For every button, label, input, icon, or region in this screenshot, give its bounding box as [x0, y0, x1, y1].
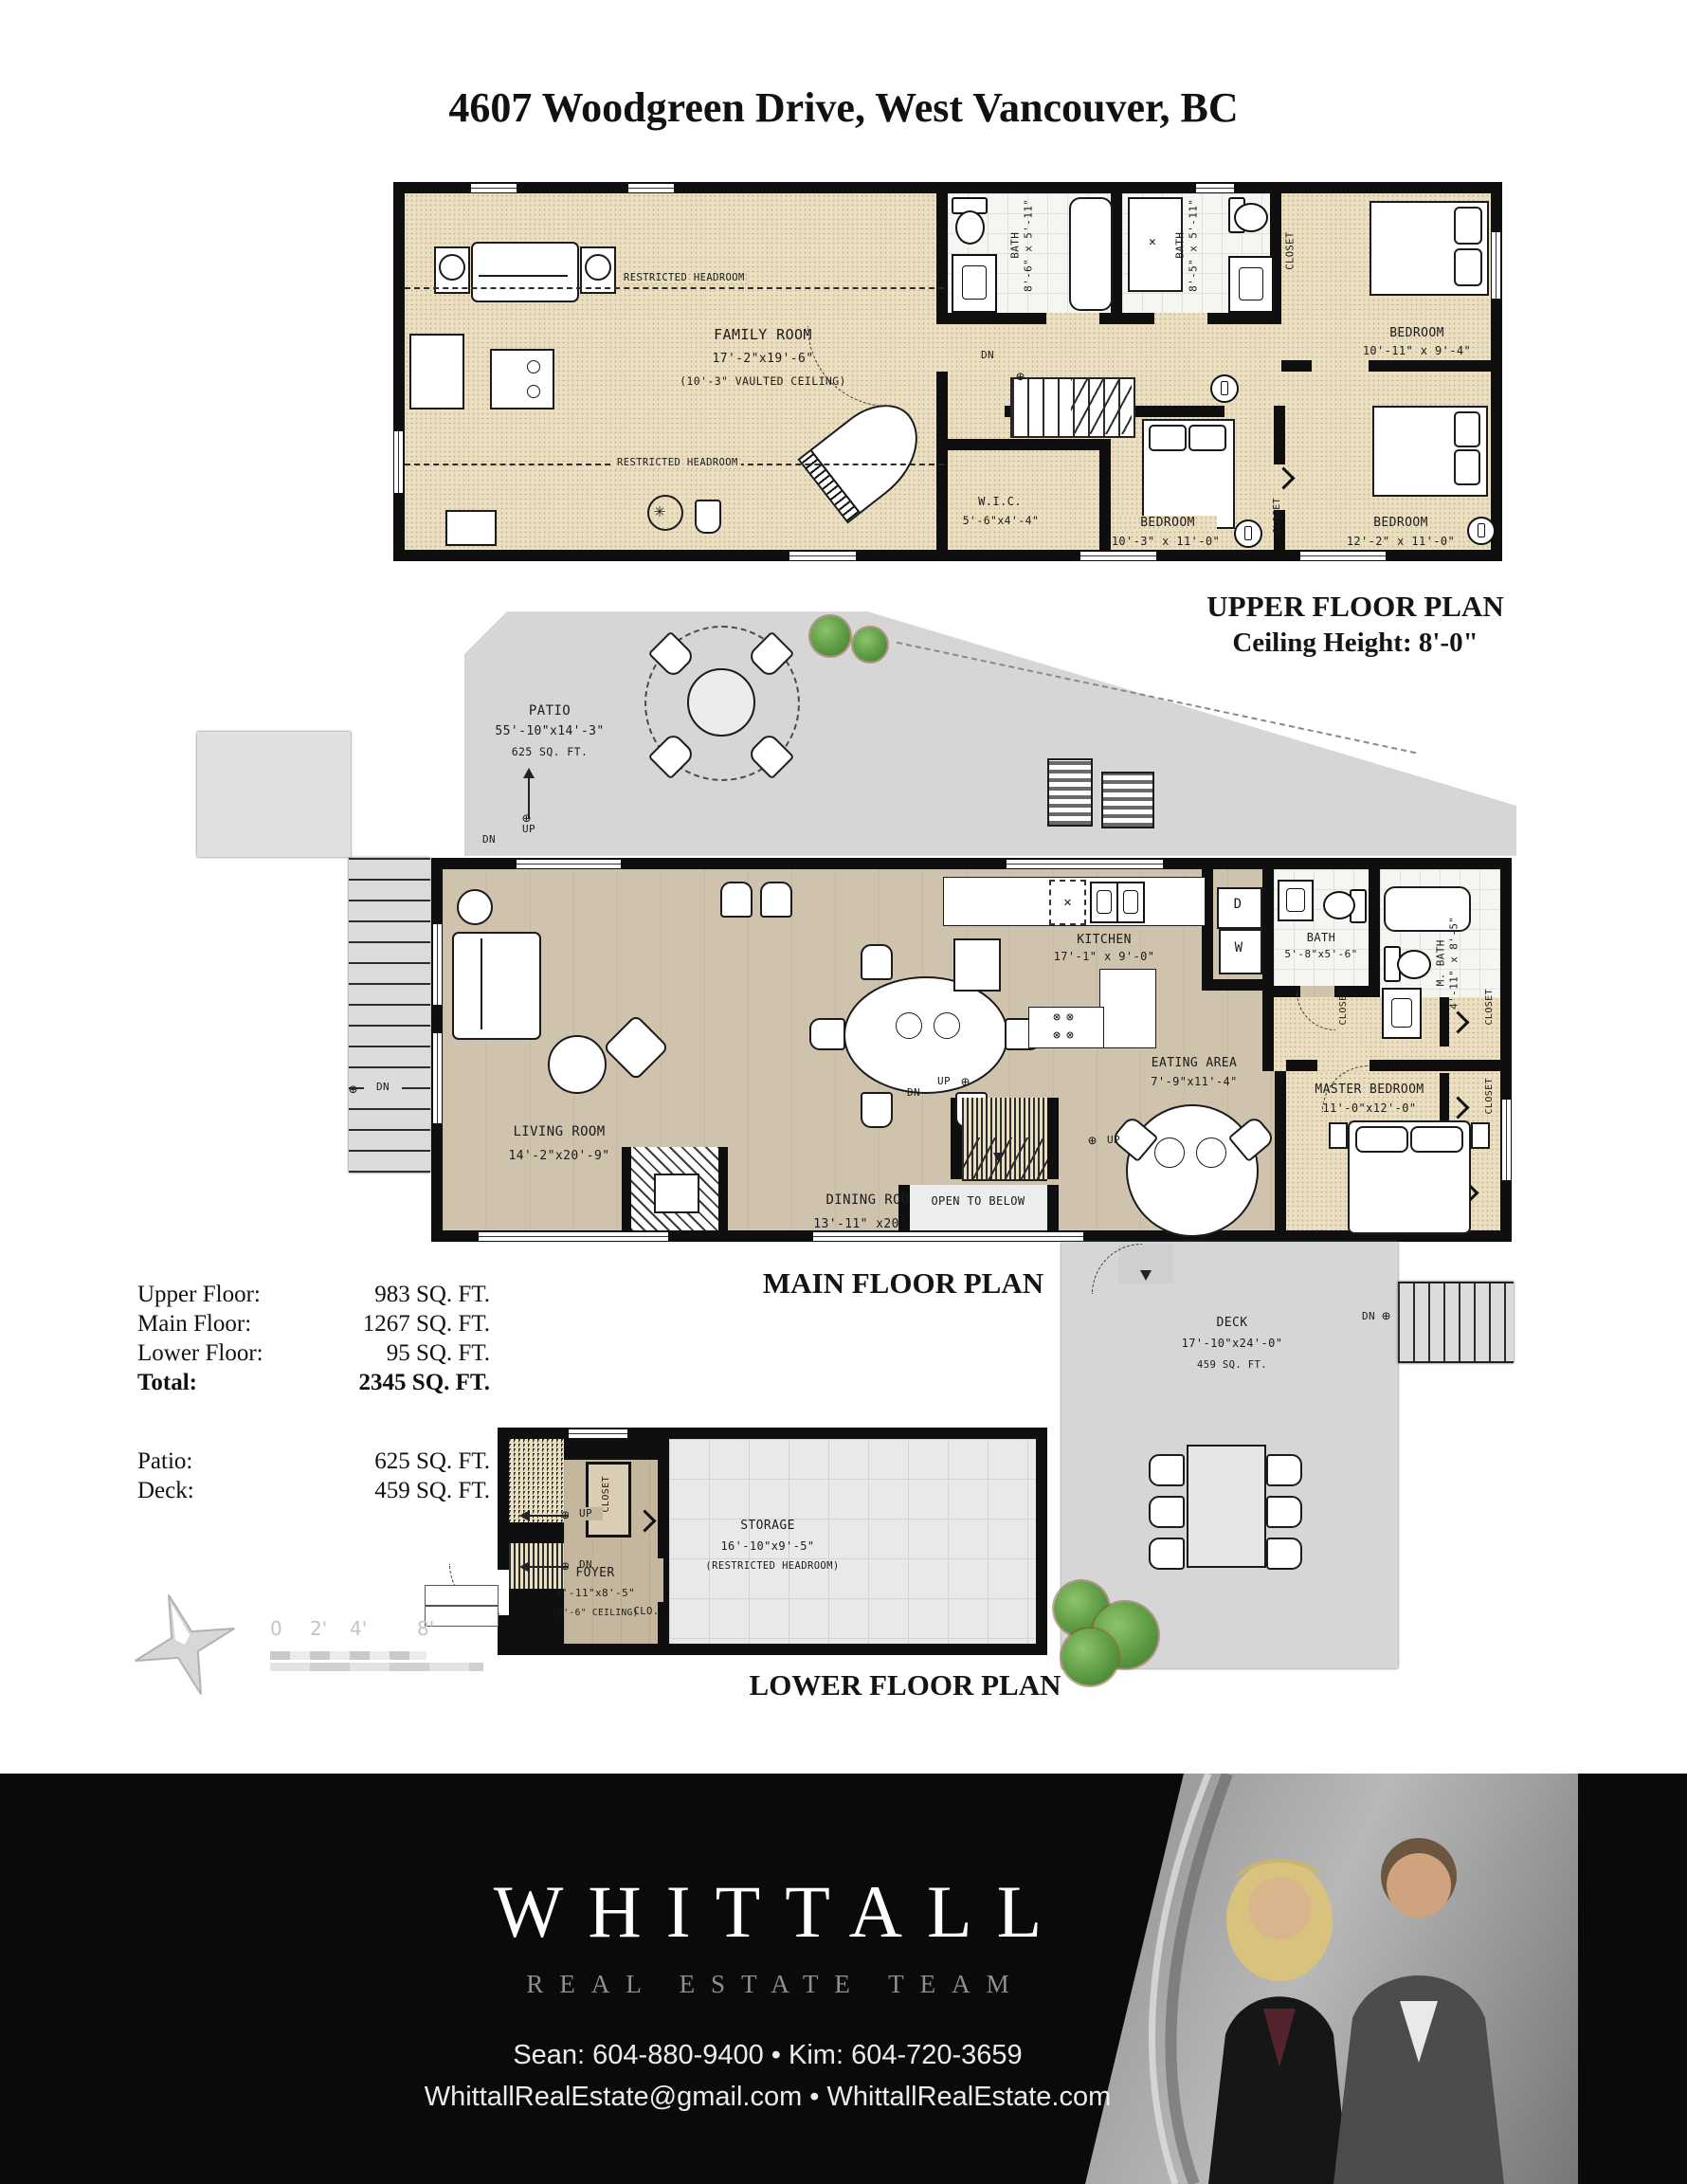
- chair-icon: [695, 500, 721, 534]
- scale-4: 4': [350, 1617, 367, 1640]
- armchair-icon: [720, 882, 753, 918]
- area-label: Main Floor:: [137, 1311, 251, 1337]
- chair-icon: [1149, 1538, 1185, 1570]
- living-label: LIVING ROOM: [464, 1124, 654, 1141]
- pillow-icon: [1454, 449, 1480, 485]
- tv-console-icon: [490, 349, 554, 409]
- upper-plan-caption: UPPER FLOOR PLAN: [1118, 590, 1592, 624]
- bedroom1-dims: 10'-11" x 9'-4": [1336, 344, 1497, 358]
- wall: [1202, 979, 1274, 991]
- window: [1502, 1100, 1511, 1180]
- master-label: MASTER BEDROOM: [1270, 1083, 1469, 1098]
- window: [1300, 552, 1386, 560]
- bath1-name: BATH: [1008, 232, 1021, 259]
- scale-segments: [270, 1651, 426, 1660]
- restricted-headroom-label: RESTRICTED HEADROOM: [621, 272, 748, 284]
- master-dims: 11'-0"x12'-0": [1270, 1101, 1469, 1116]
- chair-icon: [1266, 1496, 1302, 1528]
- speaker-icon: [527, 360, 540, 373]
- north-arrow-icon: [133, 1592, 237, 1697]
- bench-icon: [445, 510, 497, 546]
- closet-label: CLOSET: [1338, 976, 1351, 1037]
- exterior-stairs: [349, 858, 430, 1173]
- chair-icon: [1149, 1496, 1185, 1528]
- stair-node-icon: [1382, 1309, 1396, 1323]
- bath-dims: 5'-8"x5'-6": [1270, 948, 1372, 961]
- toilet-icon: [1234, 203, 1268, 232]
- window: [628, 184, 674, 192]
- stairs-winder: [962, 1137, 1047, 1179]
- lamp-icon: [439, 254, 465, 281]
- speaker-icon: [527, 385, 540, 398]
- area-row: Upper Floor:983 SQ. FT.: [137, 1282, 490, 1308]
- deck-sqft: 459 SQ. FT.: [1156, 1359, 1308, 1372]
- cabinet-icon: [409, 334, 464, 409]
- window: [433, 1033, 442, 1123]
- footer-web: WhittallRealEstate@gmail.com • WhittallR…: [227, 2082, 1308, 2113]
- area-value: 2345 SQ. FT.: [359, 1370, 490, 1396]
- wall: [622, 1147, 631, 1230]
- fireplace-box: [654, 1174, 699, 1213]
- washer-icon: W: [1219, 929, 1262, 974]
- bath-label: BATH: [1274, 931, 1369, 945]
- entry-step: [425, 1585, 499, 1606]
- footer-phones: Sean: 604-880-9400 • Kim: 604-720-3659: [227, 2040, 1308, 2071]
- scale-8: 8': [417, 1617, 434, 1640]
- toilet-icon: [1397, 950, 1431, 979]
- dryer-label: D: [1219, 897, 1257, 914]
- kitchen-island: [1099, 969, 1156, 1048]
- plate-icon: [1196, 1137, 1226, 1168]
- restricted-headroom-label: RESTRICTED HEADROOM: [614, 457, 741, 469]
- pillow-icon: [1355, 1126, 1408, 1153]
- pillow-icon: [1410, 1126, 1463, 1153]
- lamp-icon: [585, 254, 611, 281]
- sofa-back-line: [479, 275, 568, 277]
- chair-icon: [861, 944, 893, 980]
- bedroom2-dims: 10'-3" x 11'-0": [1111, 535, 1221, 549]
- deck-dims: 17'-10"x24'-0": [1156, 1337, 1308, 1351]
- deck-stairs: [1398, 1282, 1514, 1363]
- area-value: 459 SQ. FT.: [374, 1478, 490, 1504]
- foyer-label: FOYER: [548, 1566, 643, 1581]
- clo-label: CLO.: [626, 1606, 667, 1618]
- toilet-icon: [1323, 891, 1355, 919]
- window: [813, 1232, 1083, 1241]
- window: [517, 860, 621, 868]
- lower-plan-caption: LOWER FLOOR PLAN: [716, 1668, 1095, 1702]
- dn-label: DN: [969, 349, 1007, 362]
- plant-icon: [853, 628, 887, 662]
- chair-icon: [1149, 1454, 1185, 1486]
- wall: [1286, 1060, 1317, 1071]
- deck-label: DECK: [1156, 1316, 1308, 1331]
- kitchen-dims: 17'-1" x 9'-0": [1024, 950, 1185, 964]
- washer-label: W: [1221, 940, 1257, 957]
- wall: [1369, 360, 1491, 372]
- area-value: 625 SQ. FT.: [374, 1448, 490, 1475]
- wall: [718, 1147, 728, 1230]
- stair-node-icon: [1016, 370, 1030, 384]
- up-label: UP: [510, 823, 548, 836]
- eating-label: EATING AREA: [1099, 1056, 1289, 1071]
- patio-sqft: 625 SQ. FT.: [474, 745, 626, 758]
- sink-icon: [1278, 880, 1314, 921]
- plant-icon: [810, 616, 850, 656]
- eating-dims: 7'-9"x11'-4": [1099, 1075, 1289, 1089]
- scale-2: 2': [310, 1617, 327, 1640]
- pillow-icon: [1149, 425, 1187, 451]
- chair-icon: [1266, 1454, 1302, 1486]
- cooktop-icon: ⊗⊗⊗⊗: [1033, 1009, 1099, 1045]
- plate-icon: [1154, 1137, 1185, 1168]
- bath1-dims: 8'-6" x 5'-11": [1022, 199, 1034, 292]
- window: [471, 184, 517, 192]
- bedroom3-label: BEDROOM: [1353, 516, 1448, 531]
- bedroom1-label: BEDROOM: [1336, 326, 1497, 341]
- sofa-icon: [471, 242, 579, 302]
- area-label: Lower Floor:: [137, 1340, 263, 1366]
- closet-label: CLOSET: [1484, 1065, 1497, 1126]
- main-plan-caption: MAIN FLOOR PLAN: [714, 1266, 1093, 1301]
- stove-icon: ✕: [1049, 880, 1086, 925]
- man-face: [1387, 1853, 1451, 1918]
- stair-node-icon: [961, 1075, 975, 1089]
- down-arrowhead-icon: [993, 1153, 1005, 1163]
- wic-dims: 5'-6"x4'-4": [944, 514, 1058, 527]
- chair-icon: [1266, 1538, 1302, 1570]
- eating-table-icon: [1126, 1104, 1259, 1237]
- sofa-cushion-line: [481, 938, 482, 1029]
- dn-label: DN: [895, 1086, 933, 1100]
- wall: [1047, 1098, 1059, 1179]
- nightstand-icon: [1471, 1122, 1490, 1149]
- storage-label: STORAGE: [673, 1519, 862, 1534]
- window: [1492, 232, 1500, 299]
- wall: [658, 1439, 669, 1558]
- area-value: 95 SQ. FT.: [387, 1340, 490, 1367]
- area-value: 983 SQ. FT.: [374, 1282, 490, 1308]
- table-icon: [647, 495, 683, 531]
- shower-x: ✕: [1149, 235, 1156, 249]
- window: [394, 431, 403, 493]
- sink-icon: [1382, 988, 1422, 1039]
- area-label: Total:: [137, 1370, 197, 1395]
- scale-0: 0: [270, 1617, 282, 1640]
- wall: [944, 439, 1111, 450]
- footer-brand: WHITTALL: [322, 1869, 1213, 1955]
- wall: [1281, 360, 1312, 372]
- area-value: 1267 SQ. FT.: [363, 1311, 490, 1338]
- wall: [1369, 869, 1380, 986]
- bath1-label: BATH 8'-6" x 5'-11": [1008, 189, 1035, 302]
- kitchen-sink-icon: [1090, 882, 1118, 923]
- window: [569, 1429, 627, 1438]
- bedroom2-label: BEDROOM: [1118, 516, 1217, 531]
- sectional-sofa-icon: [452, 932, 541, 1040]
- pillow-icon: [1188, 425, 1226, 451]
- mbath-name: M. BATH: [1434, 939, 1446, 986]
- area-label: Upper Floor:: [137, 1282, 261, 1307]
- footer-tagline: REAL ESTATE TEAM: [322, 1970, 1213, 1999]
- fridge-icon: [953, 938, 1001, 992]
- armchair-icon: [760, 882, 792, 918]
- area-label: Deck:: [137, 1478, 194, 1503]
- scale-bar: 0 2' 4' 8': [270, 1617, 498, 1674]
- floorplan-flyer: 4607 Woodgreen Drive, West Vancouver, BC…: [0, 0, 1687, 2184]
- wall: [1440, 1073, 1449, 1126]
- patio-dims: 55'-10"x14'-3": [474, 724, 626, 739]
- left-arrowhead-icon: [519, 1561, 530, 1573]
- foyer-dims: 4'-11"x8'-5": [548, 1587, 643, 1600]
- storage-dims: 16'-10"x9'-5": [673, 1539, 862, 1554]
- mbath-label: M. BATH 4'-11" x 8'-5": [1434, 901, 1460, 1025]
- area-row: Deck:459 SQ. FT.: [137, 1478, 490, 1504]
- [object: [133, 1592, 237, 1697]
- kitchen-label: KITCHEN: [1024, 933, 1185, 948]
- window: [789, 552, 856, 560]
- up-label: UP: [1097, 1134, 1130, 1147]
- wic-label: W.I.C.: [948, 495, 1052, 509]
- stair-node-icon: [349, 1083, 363, 1097]
- deck-table-icon: [1187, 1445, 1266, 1568]
- window: [1196, 184, 1234, 192]
- bathtub-icon: [1069, 197, 1113, 311]
- dn-label: DN: [470, 833, 508, 846]
- mbath-dims: 4'-11" x 8'-5": [1447, 917, 1460, 1010]
- plate-icon: [934, 1012, 960, 1039]
- nightstand-icon: [1329, 1122, 1348, 1149]
- toilet-icon: [955, 210, 985, 245]
- wall: [1099, 439, 1111, 550]
- pillow-icon: [1454, 411, 1480, 447]
- pillow-icon: [1454, 207, 1482, 245]
- wall: [1262, 869, 1274, 997]
- side-landing: [197, 732, 351, 857]
- bbq-icon: [1101, 772, 1154, 828]
- patio-label: PATIO: [474, 703, 626, 720]
- bedroom3-dims: 12'-2" x 11'-0": [1346, 535, 1456, 549]
- page-title: 4607 Woodgreen Drive, West Vancouver, BC: [275, 83, 1412, 132]
- coffee-table-icon: [548, 1035, 607, 1094]
- upper-plan-ceiling: Ceiling Height: 8'-0": [1118, 628, 1592, 659]
- closet-label: CLOSET: [1284, 221, 1297, 282]
- patio-table-icon: [687, 668, 755, 737]
- stairs-winder: [1071, 377, 1132, 434]
- closet-label: CLOSET: [1484, 976, 1497, 1037]
- left-arrowhead-icon: [519, 1510, 530, 1521]
- up-label: UP: [569, 1507, 603, 1520]
- wall: [1207, 313, 1281, 324]
- dn-label: DN: [364, 1081, 402, 1094]
- area-label: Patio:: [137, 1448, 192, 1474]
- wall: [936, 193, 948, 324]
- thermostat-icon: [1234, 519, 1262, 548]
- area-row: Patio:625 SQ. FT.: [137, 1448, 490, 1475]
- closet-label: CLOSET: [1272, 487, 1284, 544]
- restricted-headroom-line: [405, 287, 944, 289]
- wall: [1370, 1060, 1500, 1071]
- storage-note: (RESTRICTED HEADROOM): [663, 1560, 881, 1573]
- area-row: Main Floor:1267 SQ. FT.: [137, 1311, 490, 1338]
- lower-stairs-up: [509, 1439, 564, 1522]
- window: [1080, 552, 1156, 560]
- wall: [1274, 406, 1285, 464]
- scale-segments: [270, 1663, 483, 1671]
- thermostat-icon: [1210, 374, 1239, 403]
- hex-table-icon: [457, 889, 493, 925]
- bath2-dims: 8'-5" x 5'-11": [1187, 199, 1199, 292]
- thermostat-icon: [1467, 517, 1496, 545]
- bath2-label: BATH 8'-5" x 5'-11": [1173, 189, 1200, 302]
- chair-icon: [809, 1018, 845, 1050]
- open-below-label: OPEN TO BELOW: [902, 1192, 1054, 1210]
- area-row-total: Total:2345 SQ. FT.: [137, 1370, 490, 1396]
- woman-face: [1248, 1877, 1311, 1939]
- pillow-icon: [1454, 248, 1482, 286]
- chair-icon: [861, 1092, 893, 1128]
- wall: [948, 313, 1046, 324]
- sink-icon: [952, 254, 997, 313]
- area-row: Lower Floor:95 SQ. FT.: [137, 1340, 490, 1367]
- bath2-name: BATH: [1173, 232, 1186, 259]
- dryer-icon: D: [1217, 887, 1262, 929]
- up-arrowhead-icon: [523, 768, 535, 778]
- wall: [1099, 313, 1154, 324]
- bbq-icon: [1047, 758, 1093, 827]
- plate-icon: [896, 1012, 922, 1039]
- window: [433, 924, 442, 1005]
- kitchen-sink-icon: [1116, 882, 1145, 923]
- window: [1007, 860, 1163, 868]
- window: [479, 1232, 668, 1241]
- sink-icon: [1228, 256, 1274, 313]
